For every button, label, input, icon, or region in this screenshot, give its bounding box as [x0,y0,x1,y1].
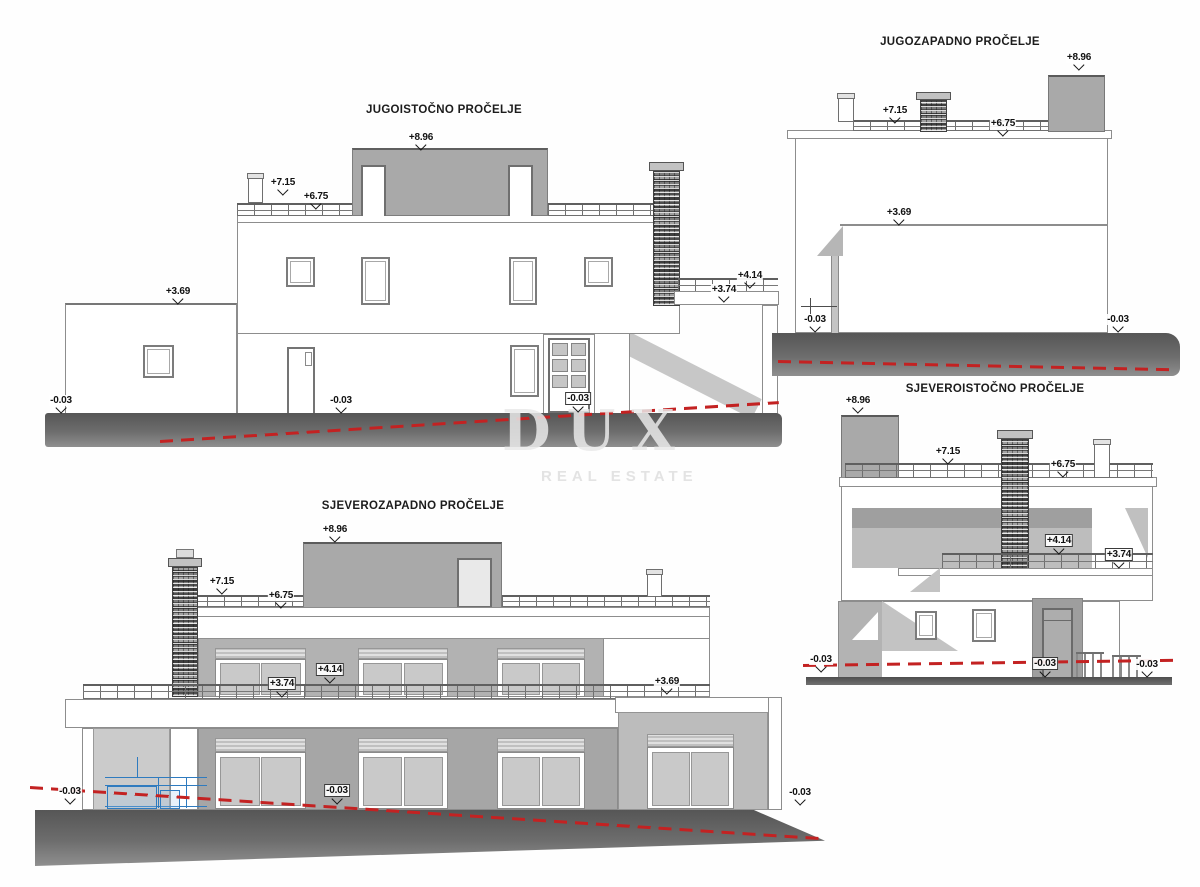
level-marker: +7.15 [270,177,296,194]
level-marker: +6.75 [303,191,329,208]
pool-equipment-box [160,790,180,809]
ground-strip [806,677,1172,685]
vent-pipe [1094,442,1110,478]
level-marker: -0.03 [803,314,827,331]
watermark-tagline: REAL ESTATE [541,468,698,485]
pool-equipment-line [105,777,207,778]
pool-equipment-mast [137,757,138,777]
side-wall-shade [839,602,882,680]
level-marker: +4.14 [737,270,763,287]
level-marker: -0.03 [58,786,82,803]
level-marker: +6.75 [268,590,294,607]
pool-equipment-line [158,777,159,808]
level-marker: -0.03 [565,392,591,411]
level-marker: -0.03 [1032,657,1058,676]
level-marker: +3.74 [268,677,296,696]
level-marker: -0.03 [788,787,812,804]
stone-chimney [1001,439,1029,571]
level-marker: +3.74 [1105,548,1133,567]
level-marker: +3.69 [654,676,680,693]
level-marker: -0.03 [1106,314,1130,331]
level-marker: +4.14 [316,663,344,682]
level-marker: +3.69 [165,286,191,303]
window [915,611,937,640]
door-transom-line [1044,620,1071,621]
level-marker: +6.75 [990,118,1016,135]
pool-equipment-box [107,786,157,809]
elevation-drawing-sheet: JUGOISTOČNO PROČELJE [0,0,1200,887]
elevation-title: SJEVEROISTOČNO PROČELJE [906,383,1085,395]
level-marker: +3.74 [711,284,737,301]
window [972,609,996,642]
door-glass-panels [552,343,586,388]
level-marker: -0.03 [324,784,350,803]
level-marker: +4.14 [1045,534,1073,553]
level-marker: +8.96 [845,395,871,412]
elevation-title: JUGOISTOČNO PROČELJE [366,104,522,116]
level-marker: +8.96 [322,524,348,541]
elevation-title: JUGOZAPADNO PROČELJE [880,36,1040,48]
level-marker: +8.96 [1066,52,1092,69]
level-marker: +6.75 [1050,459,1076,476]
level-marker: -0.03 [809,654,833,671]
chimney-cap [997,430,1033,439]
level-marker: +7.15 [882,105,908,122]
pool-equipment-line [186,777,187,808]
level-marker: +8.96 [408,132,434,149]
level-marker: -0.03 [329,395,353,412]
level-marker: +3.69 [886,207,912,224]
level-marker: -0.03 [49,395,73,412]
terrace-recess-dark [852,508,1092,528]
elevation-title: SJEVEROZAPADNO PROČELJE [322,500,504,512]
level-marker: +7.15 [209,576,235,593]
level-marker: +7.15 [935,446,961,463]
level-marker: -0.03 [1135,659,1159,676]
watermark-logo: DUX [502,398,691,464]
